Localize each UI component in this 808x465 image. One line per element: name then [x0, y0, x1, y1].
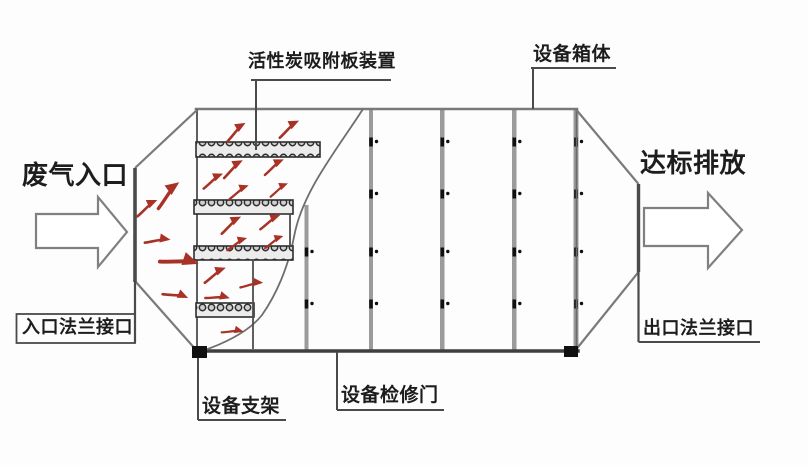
carbon-plate	[196, 142, 320, 157]
gas-flow-arrow-icon	[163, 283, 190, 306]
gas-flow-arrow-icon	[261, 156, 287, 175]
inlet-cone	[135, 110, 197, 351]
carbon-plate	[196, 303, 254, 317]
gas-flow-arrow-icon	[227, 182, 251, 199]
gas-flow-arrow-icon	[240, 276, 263, 291]
label-inlet-flange: 入口法兰接口	[22, 319, 133, 338]
gas-flow-arrow-icon	[133, 197, 160, 217]
label-activated-carbon-plates: 活性炭吸附板装置	[248, 53, 396, 72]
gas-flow-arrow-icon	[222, 322, 245, 339]
outlet-arrow-icon	[644, 193, 742, 268]
gas-flow-arrow-icon	[222, 120, 249, 142]
carbon-plate	[194, 246, 293, 260]
gas-flow-arrow-icon	[268, 180, 291, 196]
label-equipment-cabinet: 设备箱体	[533, 45, 611, 65]
label-discharge: 达标排放	[640, 151, 746, 178]
inlet-arrow-icon	[36, 197, 127, 267]
gas-flow-arrow-icon	[202, 264, 228, 282]
label-outlet-flange: 出口法兰接口	[643, 320, 754, 339]
gas-flow-arrow-icon	[219, 157, 246, 178]
label-access-door: 设备检修门	[341, 386, 439, 406]
carbon-plate	[194, 200, 293, 214]
label-equipment-support: 设备支架	[202, 397, 280, 417]
gas-flow-arrow-icon	[200, 170, 225, 188]
gas-flow-arrow-icon	[217, 213, 244, 233]
gas-flow-arrow-icon	[150, 178, 185, 208]
outlet-cone	[577, 110, 639, 349]
label-waste-gas-inlet: 废气入口	[22, 163, 128, 190]
diagram-canvas: 废气入口 活性炭吸附板装置 设备箱体 达标排放 入口法兰接口 出口法兰接口 设备…	[0, 0, 808, 465]
gas-flow-arrow-icon	[275, 117, 302, 137]
carbon-plates	[194, 142, 320, 349]
gas-flow-arrow-icon	[145, 230, 172, 249]
